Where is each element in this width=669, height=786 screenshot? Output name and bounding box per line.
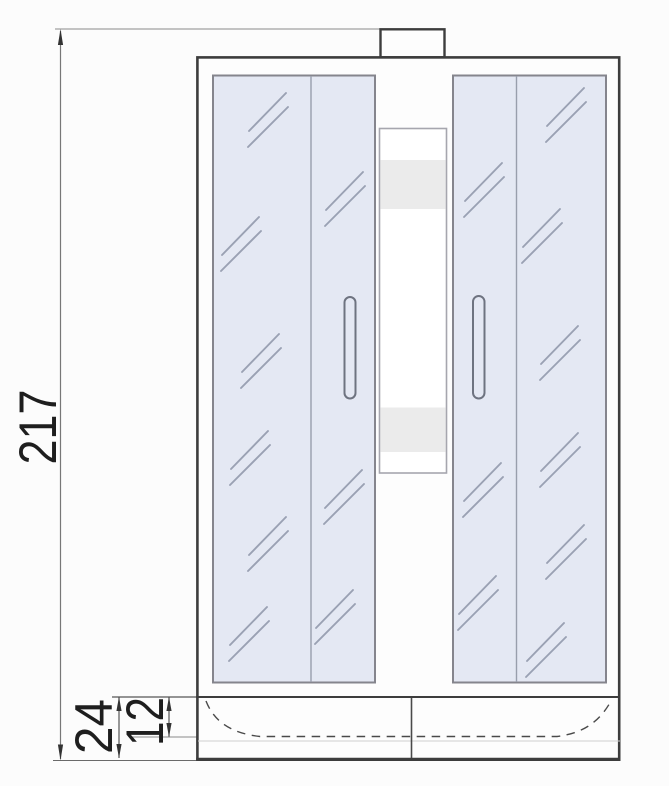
svg-text:217: 217 [9,390,68,465]
svg-text:12: 12 [116,697,175,746]
